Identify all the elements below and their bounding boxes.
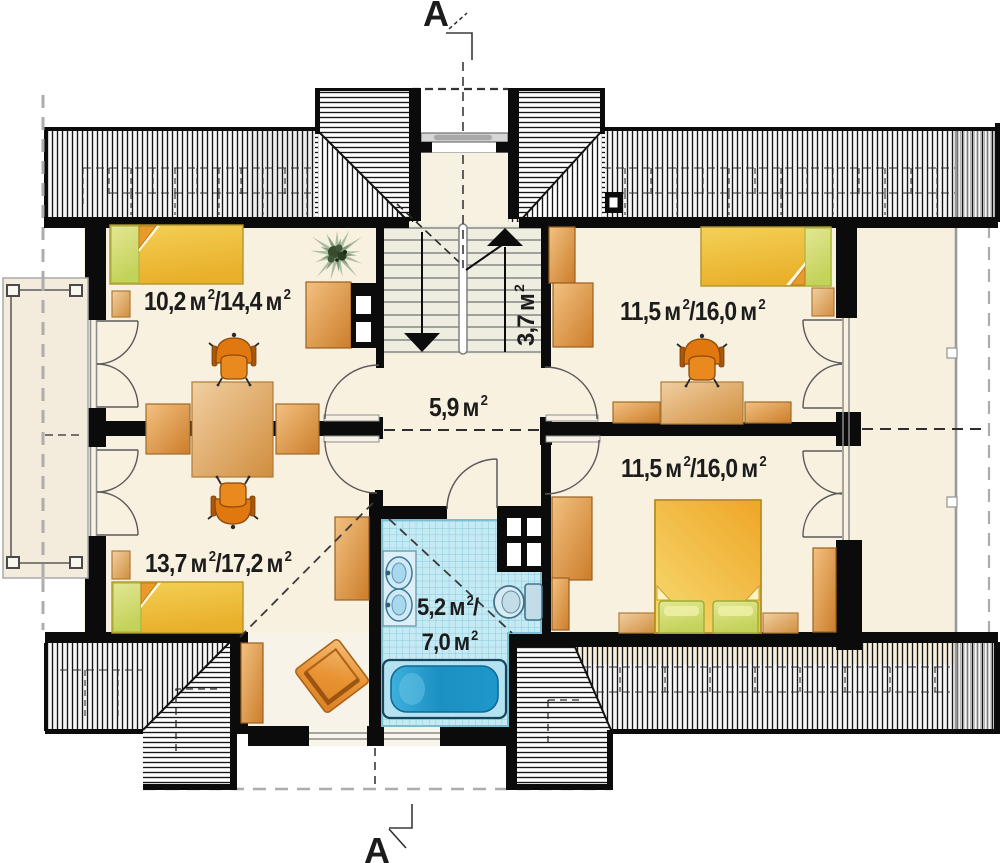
svg-text:A: A: [423, 0, 449, 34]
svg-text:11,5 м 2/16,0 м 2: 11,5 м 2/16,0 м 2: [621, 452, 767, 483]
svg-text:11,5 м 2/16,0 м 2: 11,5 м 2/16,0 м 2: [620, 295, 766, 326]
svg-text:10,2 м 2/14,4 м 2: 10,2 м 2/14,4 м 2: [144, 285, 291, 316]
svg-text:13,7 м 2/17,2 м 2: 13,7 м 2/17,2 м 2: [145, 547, 292, 578]
svg-text:A: A: [364, 830, 390, 863]
